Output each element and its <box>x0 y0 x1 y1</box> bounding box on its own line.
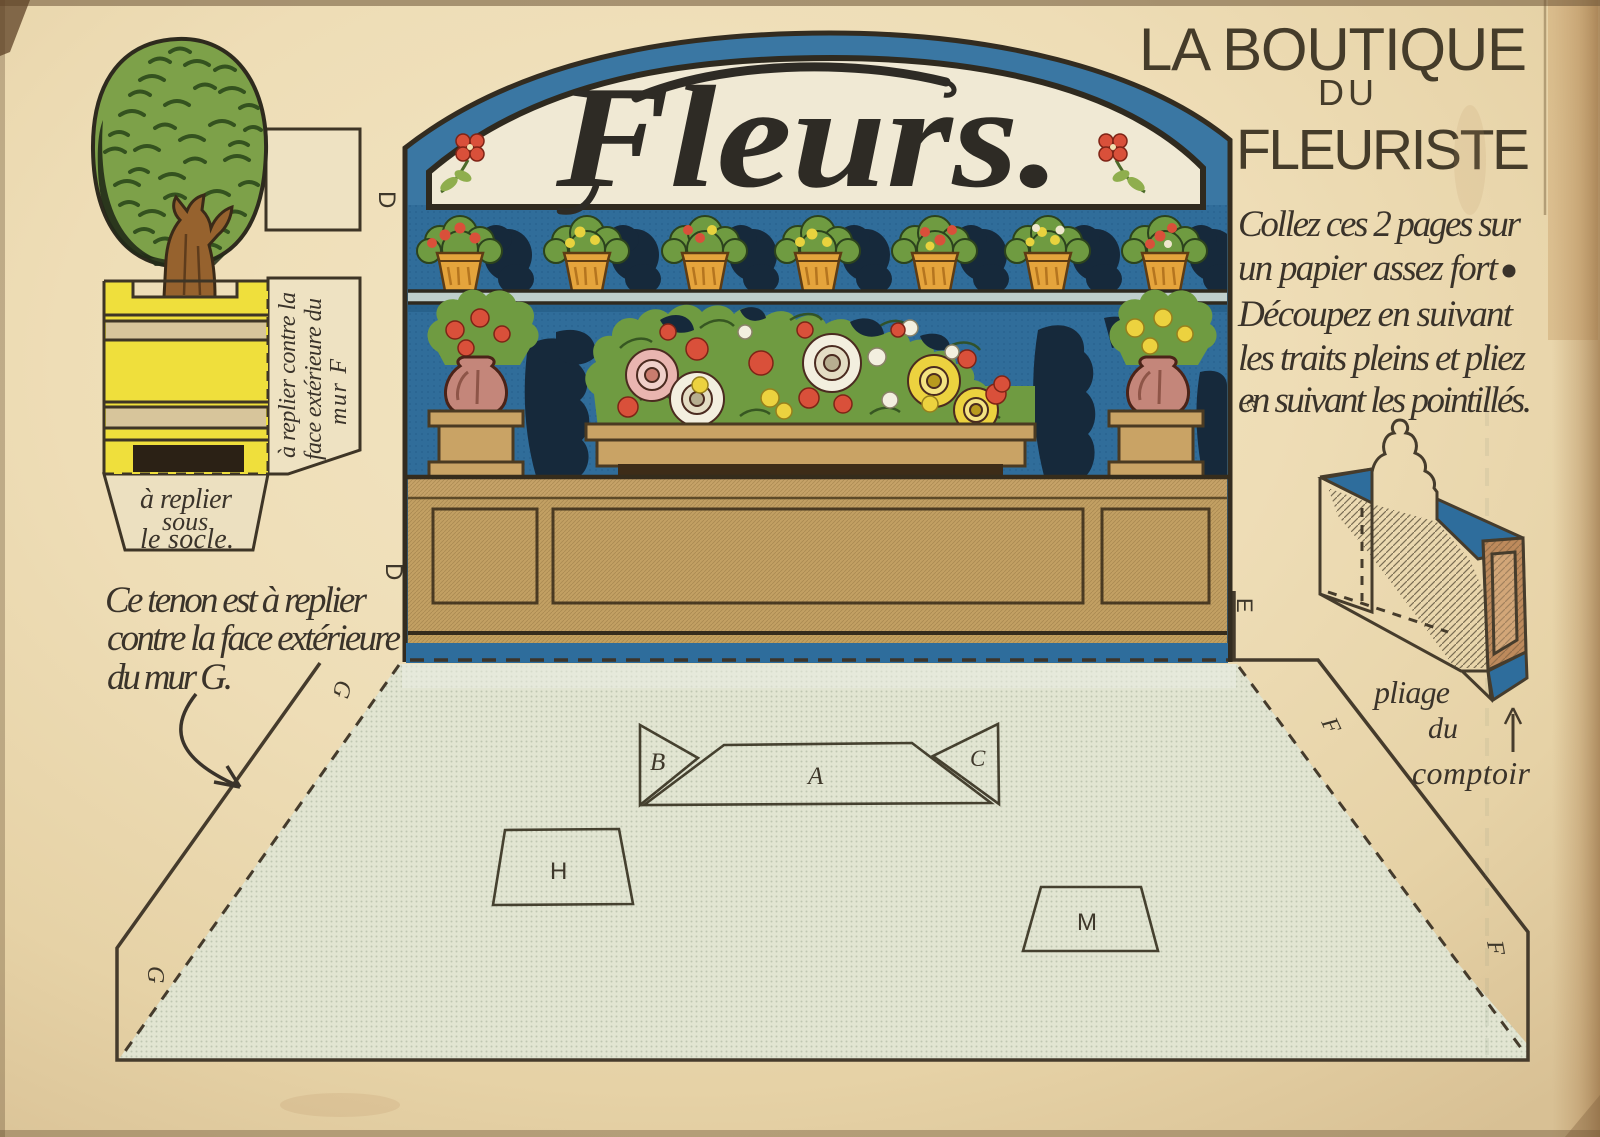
svg-text:B: B <box>650 749 665 776</box>
svg-text:Ce tenon est à replier: Ce tenon est à replier <box>105 580 368 621</box>
svg-text:H: H <box>550 858 567 885</box>
svg-text:M: M <box>1077 909 1097 936</box>
svg-text:les traits pleins et pliez: les traits pleins et pliez <box>1238 338 1526 379</box>
svg-text:E: E <box>1232 598 1257 613</box>
svg-text:un papier assez fort: un papier assez fort <box>1238 248 1500 289</box>
svg-text:comptoir: comptoir <box>1412 755 1531 791</box>
svg-text:à replier contre la: à replier contre la <box>275 292 301 458</box>
svg-text:en suivant les pointillés.: en suivant les pointillés. <box>1238 380 1532 421</box>
svg-text:FLEURISTE: FLEURISTE <box>1236 118 1530 182</box>
svg-text:G: G <box>142 966 168 983</box>
svg-text:Collez ces 2 pages sur: Collez ces 2 pages sur <box>1238 204 1522 245</box>
svg-text:pliage: pliage <box>1372 674 1450 710</box>
svg-text:face extérieure du: face extérieure du <box>301 298 327 460</box>
svg-text:contre la face extérieure: contre la face extérieure <box>107 618 401 659</box>
svg-text:Découpez en suivant: Découpez en suivant <box>1237 294 1515 335</box>
svg-text:Fleurs.: Fleurs. <box>555 56 1061 218</box>
svg-text:du mur G.: du mur G. <box>107 657 233 698</box>
svg-text:DU: DU <box>1318 72 1378 113</box>
svg-text:A: A <box>806 763 824 790</box>
svg-text:mur F: mur F <box>326 359 352 425</box>
svg-text:C: C <box>970 746 986 771</box>
svg-text:le socle.: le socle. <box>140 524 234 555</box>
svg-text:D: D <box>373 191 400 208</box>
svg-text:du: du <box>1428 712 1458 745</box>
